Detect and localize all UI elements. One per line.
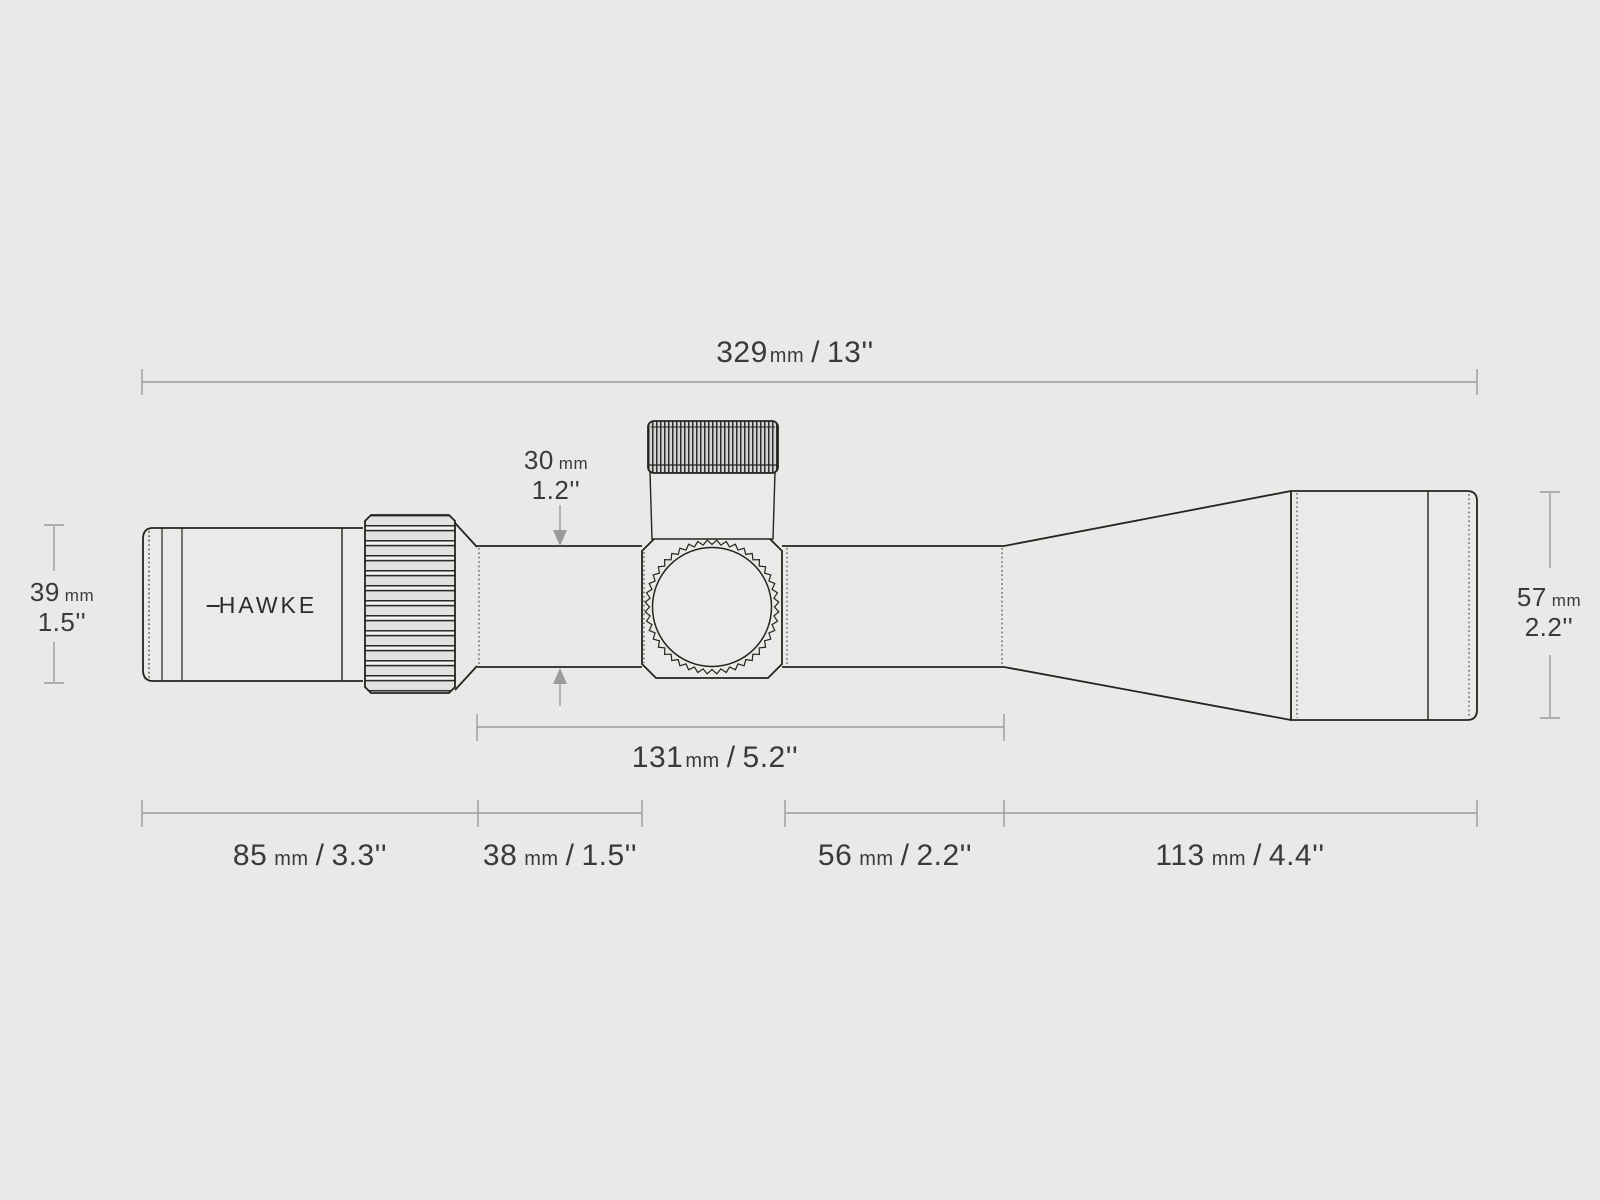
dim-eyepiece-diameter-label: 39mm 1.5''	[30, 579, 94, 636]
objective-diameter-mm: 57	[1517, 582, 1547, 612]
overall-length-inches: 13''	[827, 336, 874, 369]
overall-length-mm: 329	[716, 336, 768, 369]
hawke-logo: HAWKE	[207, 594, 318, 617]
dim-mount-space-line	[477, 714, 1004, 741]
dim-eyepiece-length-label: 85mm/3.3''	[233, 841, 387, 874]
dim-rear-tube-length-label: 38mm/1.5''	[483, 841, 637, 874]
dim-mount-space-label: 131mm/5.2''	[632, 743, 798, 776]
mount-space-inches: 5.2''	[743, 741, 799, 774]
objective-cone-bottom	[1004, 667, 1291, 720]
objective-length-mm: 113	[1155, 839, 1204, 872]
hawke-logo-text: HAWKE	[219, 594, 318, 617]
overall-length-slash: /	[811, 336, 820, 369]
scope-body	[143, 421, 1477, 720]
dim-overall-length-label: 329mm/13''	[716, 338, 874, 371]
front-tube-length-unit: mm	[859, 848, 893, 870]
scope-dimension-diagram: 329mm/13'' 39mm 1.5'' 30mm 1.2'' 57mm 2.…	[0, 0, 1600, 1200]
objective-length-slash: /	[1253, 839, 1262, 872]
zoom-ring	[365, 515, 455, 693]
dim-objective-length-label: 113mm/4.4''	[1155, 841, 1324, 874]
overall-length-unit: mm	[770, 345, 804, 367]
tube-diameter-inches: 1.2''	[524, 477, 588, 504]
objective-length-unit: mm	[1212, 848, 1246, 870]
eyepiece-length-inches: 3.3''	[331, 839, 387, 872]
front-tube-length-inches: 2.2''	[916, 839, 972, 872]
objective-length-inches: 4.4''	[1269, 839, 1325, 872]
dim-front-tube-length-label: 56mm/2.2''	[818, 841, 972, 874]
eyepiece-diameter-mm: 39	[30, 577, 60, 607]
rear-tube-length-mm: 38	[483, 839, 517, 872]
objective-bell	[1291, 491, 1477, 720]
front-tube-length-mm: 56	[818, 839, 852, 872]
eyepiece-diameter-unit: mm	[65, 586, 94, 605]
mount-space-unit: mm	[685, 750, 719, 772]
mount-space-mm: 131	[632, 741, 684, 774]
tube-diameter-unit: mm	[559, 454, 588, 473]
eyepiece-diameter-inches: 1.5''	[30, 609, 94, 636]
rear-tube-length-inches: 1.5''	[581, 839, 637, 872]
front-tube-length-slash: /	[901, 839, 910, 872]
turret-stem	[650, 472, 775, 539]
objective-diameter-inches: 2.2''	[1517, 614, 1581, 641]
rear-tube-length-slash: /	[566, 839, 575, 872]
dim-tube-diameter-arrows	[553, 505, 567, 706]
dim-overall-length-line	[142, 369, 1477, 395]
objective-cone-top	[1004, 491, 1291, 546]
dim-tube-diameter-label: 30mm 1.2''	[524, 447, 588, 504]
tube-diameter-mm: 30	[524, 445, 554, 475]
ring-to-tube-taper-bottom	[455, 666, 477, 690]
eyepiece-length-mm: 85	[233, 839, 267, 872]
dim-objective-diameter-label: 57mm 2.2''	[1517, 584, 1581, 641]
objective-diameter-unit: mm	[1552, 591, 1581, 610]
eyepiece-length-unit: mm	[274, 848, 308, 870]
mount-space-slash: /	[727, 741, 736, 774]
rear-tube-length-unit: mm	[524, 848, 558, 870]
side-focus-wheel	[653, 548, 772, 667]
ring-to-tube-taper-top	[455, 523, 477, 547]
dim-bottom-segments-line	[142, 800, 1477, 827]
eyepiece-length-slash: /	[316, 839, 325, 872]
